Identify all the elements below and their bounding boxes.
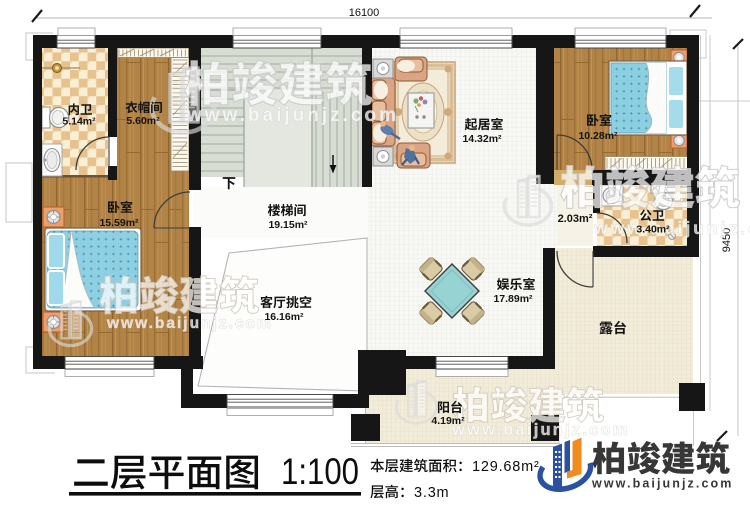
svg-text:129.68m²: 129.68m² (472, 459, 540, 475)
svg-text:www.baijunjz.com: www.baijunjz.com (106, 315, 273, 332)
svg-text:www.baijunjz.com: www.baijunjz.com (186, 105, 399, 126)
svg-text:17.89m²: 17.89m² (493, 293, 533, 305)
svg-text:3.3m: 3.3m (414, 485, 449, 501)
svg-text:16.16m²: 16.16m² (264, 311, 304, 323)
svg-text:19.15m²: 19.15m² (268, 219, 308, 231)
svg-text:2.03m²: 2.03m² (558, 213, 593, 225)
svg-text:14.32m²: 14.32m² (462, 133, 502, 145)
svg-text:16100: 16100 (349, 7, 380, 19)
svg-text:www.baijunjz.com: www.baijunjz.com (591, 477, 733, 491)
svg-text:4.19m²: 4.19m² (431, 415, 465, 427)
svg-text:5.14m²: 5.14m² (62, 116, 96, 128)
svg-text:3.40m²: 3.40m² (636, 224, 670, 236)
svg-text:1:100: 1:100 (281, 451, 359, 492)
svg-text:www.baijunjz.com: www.baijunjz.com (593, 218, 750, 238)
svg-text:10.28m²: 10.28m² (578, 130, 618, 142)
svg-text:www.baijunjz.com: www.baijunjz.com (451, 421, 630, 439)
svg-text:15.59m²: 15.59m² (99, 217, 139, 229)
svg-text:5.60m²: 5.60m² (126, 115, 160, 127)
